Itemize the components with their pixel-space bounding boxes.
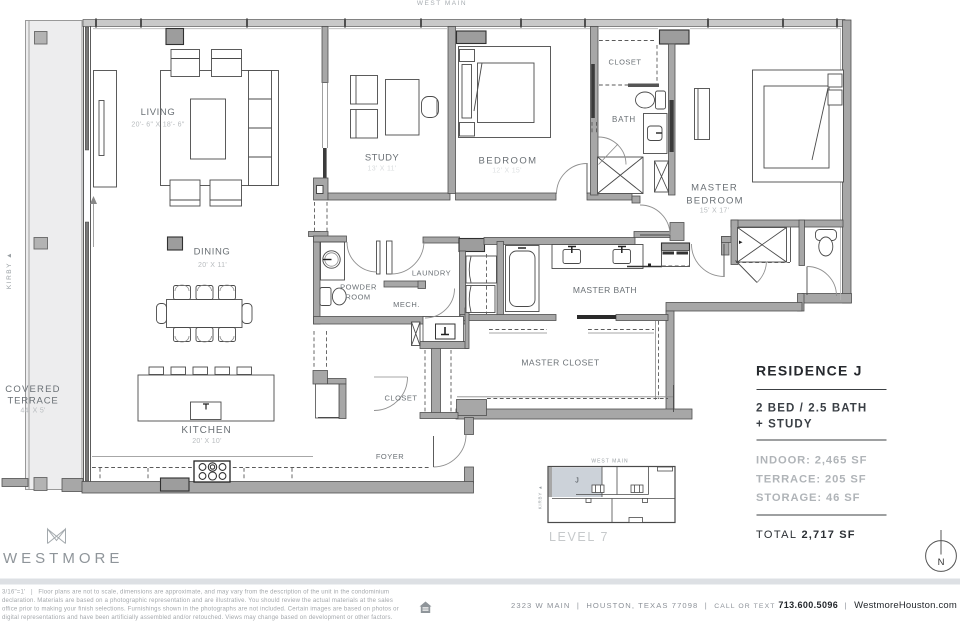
svg-text:TERRACE: TERRACE: [8, 396, 59, 407]
svg-text:BEDROOM: BEDROOM: [686, 196, 744, 207]
svg-text:WEST MAIN: WEST MAIN: [417, 0, 467, 7]
svg-text:WESTMORE: WESTMORE: [3, 550, 123, 567]
svg-text:20'- 6" X 18'- 6": 20'- 6" X 18'- 6": [131, 122, 184, 129]
svg-text:+ STUDY: + STUDY: [756, 419, 813, 431]
svg-text:BEDROOM: BEDROOM: [479, 156, 538, 167]
svg-text:STORAGE: 46 SF: STORAGE: 46 SF: [756, 492, 860, 504]
svg-text:44' X 5': 44' X 5': [20, 408, 45, 415]
svg-text:ROOM: ROOM: [345, 293, 370, 302]
svg-text:N: N: [938, 557, 945, 568]
svg-text:CLOSET: CLOSET: [608, 58, 641, 67]
svg-text:FOYER: FOYER: [376, 452, 404, 461]
svg-text:3/16"=1' | Floor plans are: 3/16"=1' | Floor plans are not to scale,…: [2, 590, 389, 596]
svg-text:LIVING: LIVING: [141, 107, 176, 118]
svg-text:STUDY: STUDY: [365, 153, 399, 164]
svg-text:INDOOR: 2,465 SF: INDOOR: 2,465 SF: [756, 455, 867, 467]
svg-text:13' X 11': 13' X 11': [368, 166, 397, 173]
svg-text:KIRBY ▲: KIRBY ▲: [538, 485, 543, 510]
svg-text:declaration. Materials are bas: declaration. Materials are based on a ph…: [2, 598, 393, 604]
svg-text:CLOSET: CLOSET: [384, 394, 417, 403]
svg-text:COVERED: COVERED: [5, 384, 60, 395]
svg-text:MASTER CLOSET: MASTER CLOSET: [521, 358, 599, 368]
svg-text:2 BED / 2.5 BATH: 2 BED / 2.5 BATH: [756, 403, 867, 415]
svg-text:15' X 17': 15' X 17': [700, 208, 730, 215]
svg-text:20' X 10': 20' X 10': [192, 438, 222, 445]
svg-text:RESIDENCE J: RESIDENCE J: [756, 363, 863, 379]
svg-text:POWDER: POWDER: [340, 283, 377, 292]
svg-text:LEVEL 7: LEVEL 7: [549, 530, 609, 544]
svg-text:TOTAL 2,717 SF: TOTAL 2,717 SF: [756, 529, 856, 541]
svg-text:LAUNDRY: LAUNDRY: [412, 269, 451, 278]
svg-text:MASTER: MASTER: [691, 183, 738, 194]
svg-text:20' X 11': 20' X 11': [198, 262, 227, 269]
svg-text:office prior to making your fi: office prior to making your finish selec…: [2, 607, 399, 613]
svg-text:TERRACE: 205 SF: TERRACE: 205 SF: [756, 474, 866, 486]
svg-text:KITCHEN: KITCHEN: [181, 425, 231, 436]
svg-text:J: J: [575, 478, 579, 485]
svg-text:BATH: BATH: [612, 115, 636, 124]
svg-text:MECH.: MECH.: [393, 300, 420, 309]
svg-text:12' X 15': 12' X 15': [492, 168, 522, 175]
svg-text:WEST MAIN: WEST MAIN: [591, 459, 628, 465]
svg-text:digital representations and ha: digital representations and have been ar…: [2, 615, 393, 621]
svg-text:KIRBY ▲: KIRBY ▲: [6, 251, 13, 289]
svg-text:MASTER BATH: MASTER BATH: [573, 285, 637, 295]
svg-text:DINING: DINING: [194, 247, 231, 258]
